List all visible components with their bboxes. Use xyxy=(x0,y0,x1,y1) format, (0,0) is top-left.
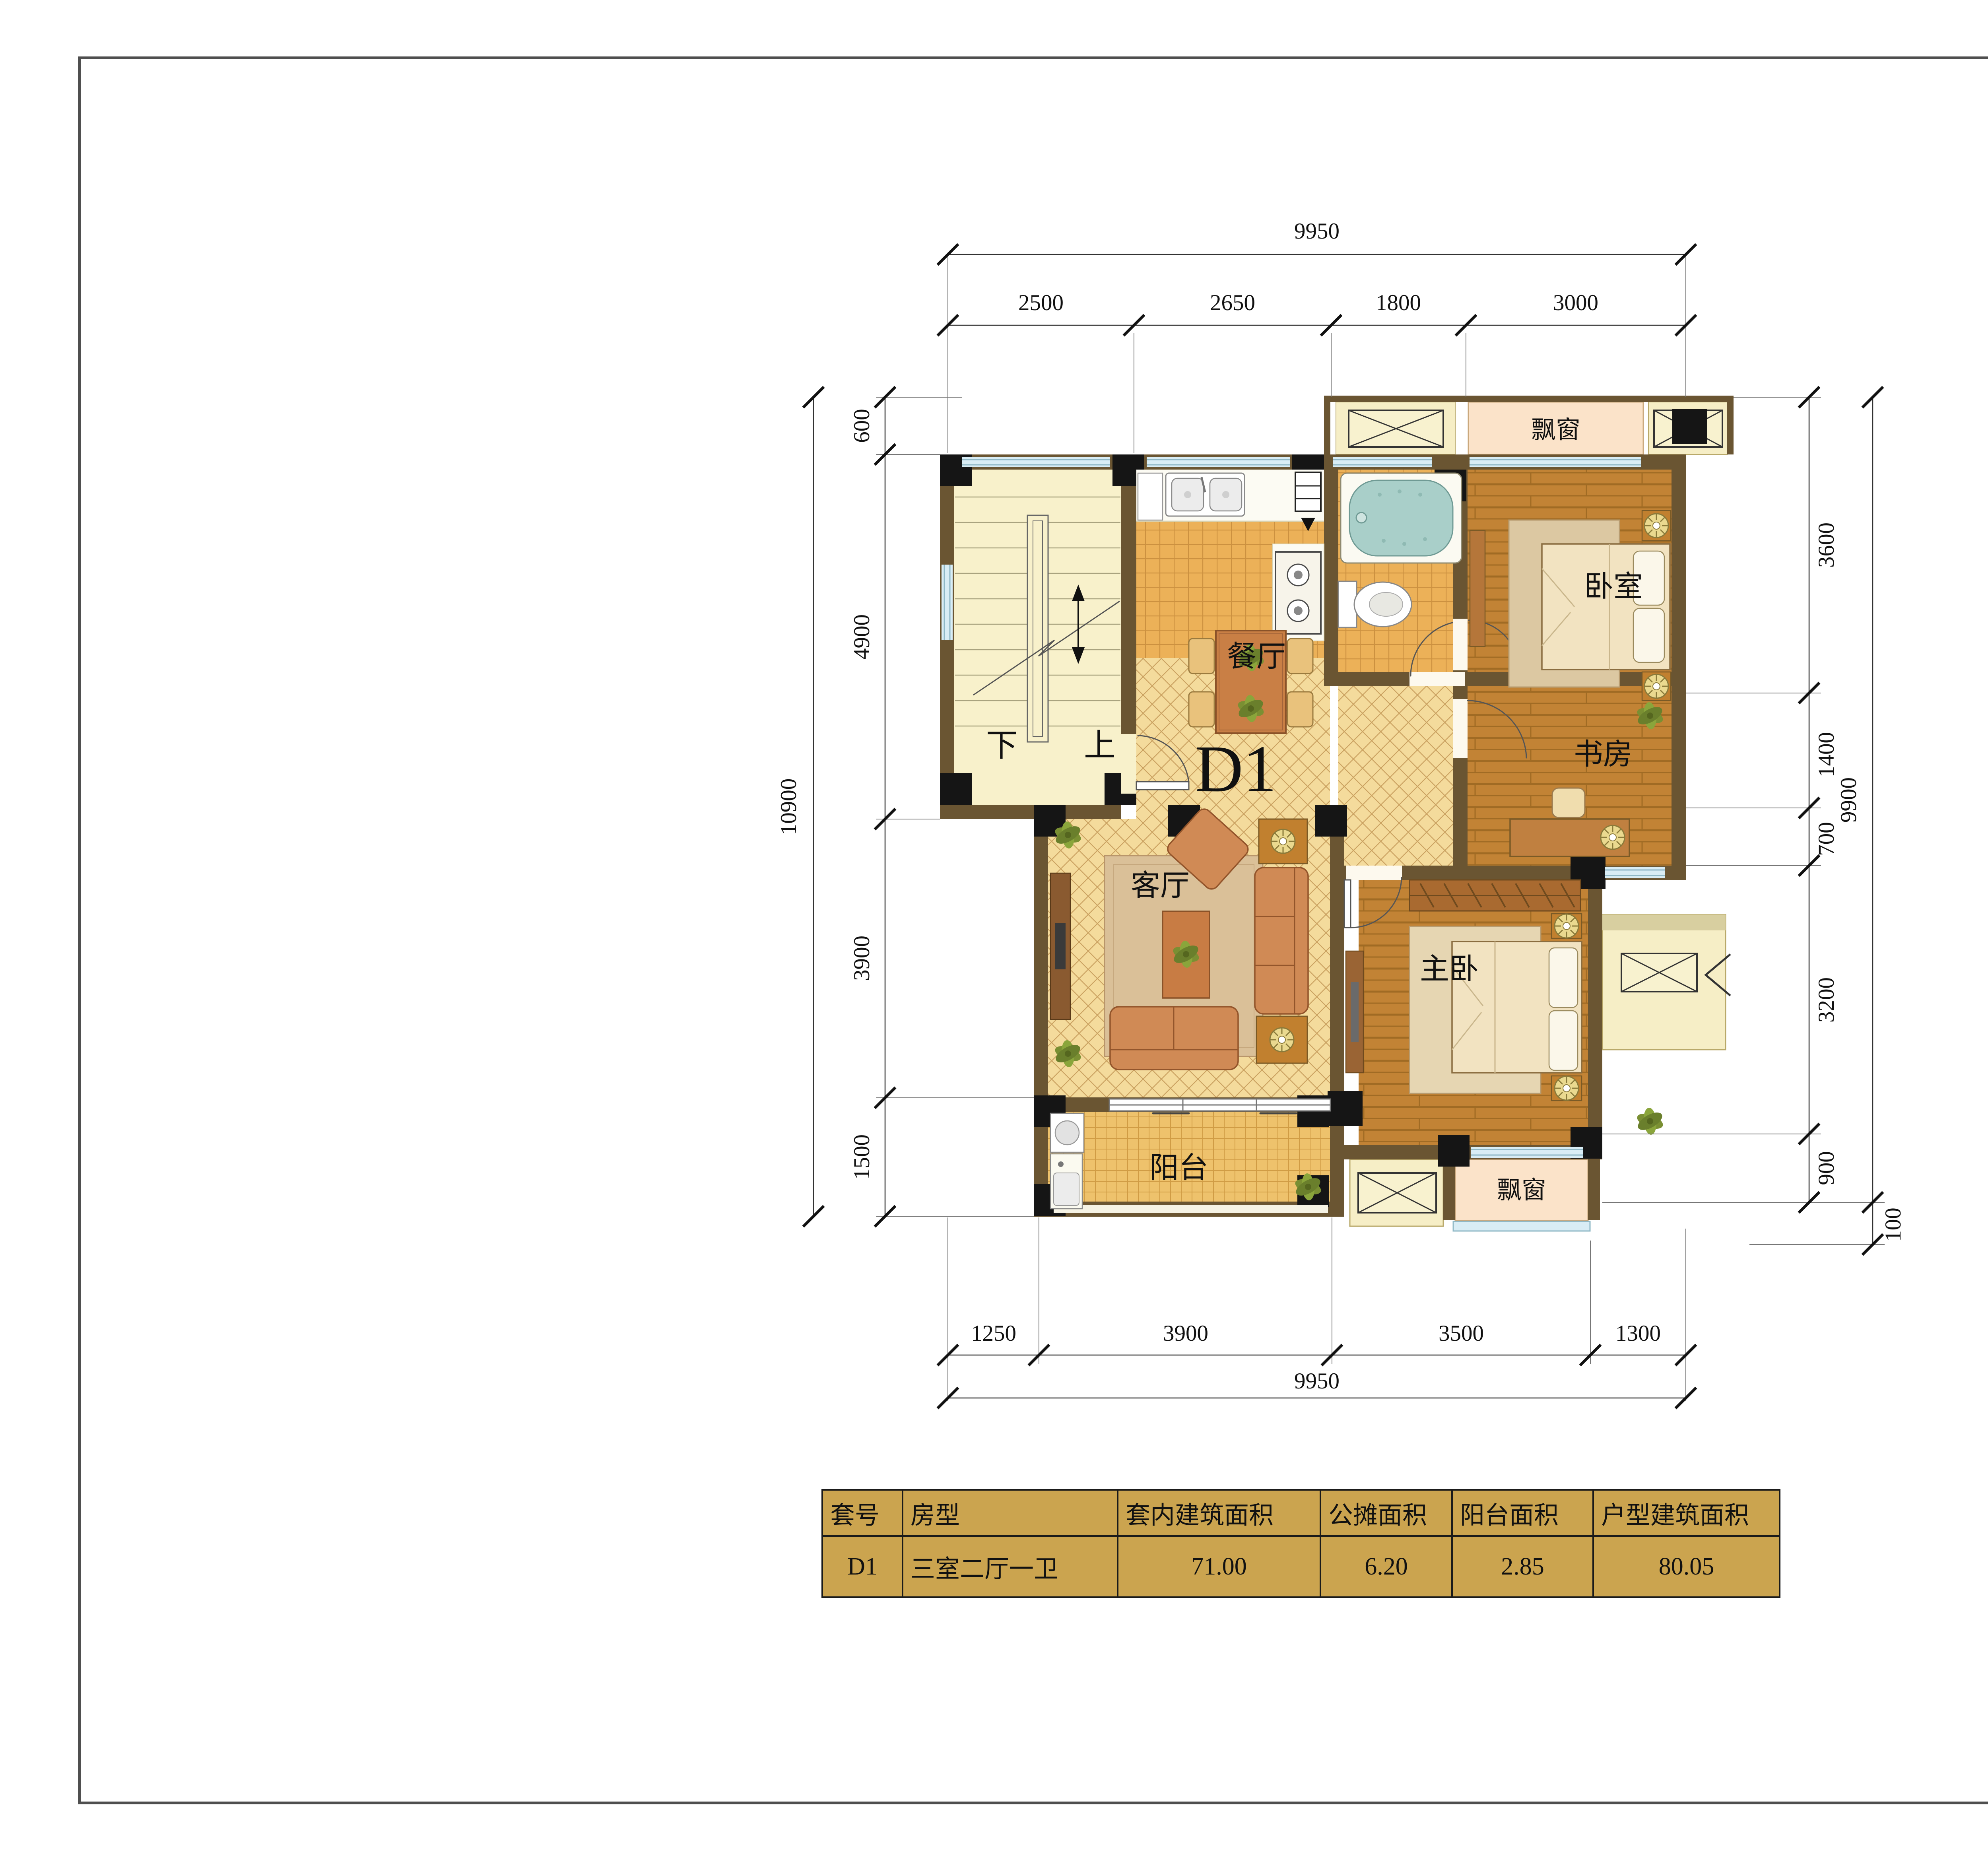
wall-living-master xyxy=(1330,819,1344,1217)
column xyxy=(940,773,972,805)
dining-chair xyxy=(1287,639,1313,674)
wall-master-right xyxy=(1588,880,1602,1159)
wall-topstrip-right xyxy=(1727,396,1734,454)
header-balcony-area: 阳台面积 xyxy=(1452,1490,1593,1536)
dim-right-total: 9900 xyxy=(1836,777,1861,823)
window-kitchen xyxy=(1147,457,1290,467)
bath-door-gap xyxy=(1409,672,1465,686)
wall-bay-bottom-right-stub xyxy=(1588,1159,1600,1220)
entry-door-leaf xyxy=(1136,782,1189,790)
wall-topstrip-left xyxy=(1324,396,1330,454)
header-unit-no: 套号 xyxy=(822,1490,903,1536)
dim-bottom-seg-1: 3900 xyxy=(1163,1321,1208,1346)
tv-icon xyxy=(1055,923,1066,969)
lamp-icon xyxy=(1644,674,1668,698)
dim-right-seg-2: 700 xyxy=(1814,822,1839,856)
dim-left-total: 10900 xyxy=(776,779,801,835)
bathtub-drain-icon xyxy=(1356,513,1367,523)
lamp-icon xyxy=(1601,825,1625,849)
dim-top-seg-0: 2500 xyxy=(1018,290,1064,315)
ac-platform-right-band xyxy=(1602,914,1726,930)
bedroom-door-gap xyxy=(1453,619,1468,670)
cell-shared-area: 6.20 xyxy=(1320,1536,1452,1597)
dining-chair xyxy=(1189,692,1214,727)
room-label-living: 客厅 xyxy=(1131,870,1190,902)
column xyxy=(1672,409,1707,444)
floor-plan-page: { "plan": { "unit_label": "D1", "rooms":… xyxy=(0,0,1988,1860)
tv-icon xyxy=(1351,982,1359,1042)
bay-window-bottom-glazing xyxy=(1453,1221,1590,1231)
dim-left-seg-1: 4900 xyxy=(849,614,874,660)
window-study xyxy=(1605,867,1665,878)
bay-window-bottom-label: 飘窗 xyxy=(1497,1177,1546,1204)
window-stair-left xyxy=(942,565,953,640)
window-stair-top xyxy=(962,457,1110,467)
unit-area-table: 套号 房型 套内建筑面积 公摊面积 阳台面积 户型建筑面积 D1 三室二厅一卫 … xyxy=(821,1489,1780,1598)
dim-right-seg-4: 900 xyxy=(1814,1151,1839,1185)
stair-rail xyxy=(1027,515,1048,742)
dim-right-seg-0: 3600 xyxy=(1814,522,1839,568)
room-label-bedroom: 卧室 xyxy=(1584,571,1643,603)
wall-bay-bottom-left-stub xyxy=(1443,1159,1455,1220)
cell-unit-no: D1 xyxy=(822,1536,903,1597)
dim-bottom-seg-2: 3500 xyxy=(1439,1321,1484,1346)
dim-right-offset: 100 xyxy=(1881,1208,1906,1242)
dim-left-seg-0: 600 xyxy=(849,409,874,443)
header-gross-area: 户型建筑面积 xyxy=(1593,1490,1780,1536)
column xyxy=(1315,805,1347,837)
lamp-icon xyxy=(1555,1076,1578,1100)
unit-label: D1 xyxy=(1195,732,1276,806)
dim-right-seg-3: 3200 xyxy=(1814,977,1839,1023)
cell-interior-area: 71.00 xyxy=(1118,1536,1320,1597)
dim-bottom-seg-0: 1250 xyxy=(971,1321,1016,1346)
table-data-row: D1 三室二厅一卫 71.00 6.20 2.85 80.05 xyxy=(822,1536,1780,1597)
cell-gross-area: 80.05 xyxy=(1593,1536,1780,1597)
lamp-icon xyxy=(1270,1028,1294,1052)
room-label-study: 书房 xyxy=(1574,738,1633,771)
lamp-icon xyxy=(1644,514,1668,538)
cell-balcony-area: 2.85 xyxy=(1452,1536,1593,1597)
hallway-floor xyxy=(1338,686,1453,866)
lamp-icon xyxy=(1271,829,1295,853)
stair-up-label: 上 xyxy=(1084,728,1116,763)
entry-door-gap xyxy=(1121,734,1136,794)
cell-layout: 三室二厅一卫 xyxy=(903,1536,1118,1597)
dining-chair xyxy=(1189,639,1214,674)
plant-icon xyxy=(1635,1107,1665,1136)
bedroom-dresser xyxy=(1470,530,1485,647)
pillow xyxy=(1549,948,1578,1008)
dim-left-seg-3: 1500 xyxy=(849,1134,874,1180)
pillow xyxy=(1549,1011,1578,1070)
master-door-leaf xyxy=(1344,880,1351,928)
room-label-dining: 餐厅 xyxy=(1227,641,1286,673)
header-interior-area: 套内建筑面积 xyxy=(1118,1490,1320,1536)
fridge-icon xyxy=(1295,472,1321,511)
column xyxy=(1328,1091,1363,1126)
pillow xyxy=(1633,608,1664,662)
dim-top-seg-2: 1800 xyxy=(1376,290,1421,315)
desk-chair xyxy=(1552,788,1585,817)
lamp-icon xyxy=(1555,914,1578,938)
bay-window-top-label: 飘窗 xyxy=(1531,417,1580,444)
room-label-balcony: 阳台 xyxy=(1149,1152,1208,1184)
table-header-row: 套号 房型 套内建筑面积 公摊面积 阳台面积 户型建筑面积 xyxy=(822,1490,1780,1536)
header-layout: 房型 xyxy=(903,1490,1118,1536)
dim-top-seg-1: 2650 xyxy=(1210,290,1255,315)
master-door-gap xyxy=(1346,866,1402,880)
wall-kitchen-bath xyxy=(1324,470,1338,672)
wall-right-upper xyxy=(1672,454,1686,880)
dim-left-seg-2: 3900 xyxy=(849,936,874,981)
room-label-master: 主卧 xyxy=(1420,953,1479,986)
dim-right-seg-1: 1400 xyxy=(1814,732,1839,777)
sofa-long xyxy=(1255,868,1308,1014)
window-bedroom-bay-sill xyxy=(1470,457,1641,467)
header-shared-area: 公摊面积 xyxy=(1320,1490,1452,1536)
dim-top-seg-3: 3000 xyxy=(1553,290,1598,315)
faucet-icon xyxy=(1058,1161,1064,1167)
window-balcony-bottom xyxy=(1054,1205,1328,1213)
dim-top-total: 9950 xyxy=(1294,219,1340,244)
wall-left-lower xyxy=(1034,805,1048,1217)
kitchen-appliance xyxy=(1138,473,1163,520)
column xyxy=(1438,1135,1470,1167)
wall-topstrip-top xyxy=(1324,396,1734,402)
stair-down-label: 下 xyxy=(986,728,1018,763)
window-master-bay-sill xyxy=(1471,1147,1583,1158)
dining-chair xyxy=(1287,692,1313,727)
window-bathroom xyxy=(1333,457,1432,467)
dim-bottom-seg-3: 1300 xyxy=(1615,1321,1661,1346)
dim-bottom-total: 9950 xyxy=(1294,1369,1340,1394)
wall-stair-bottom xyxy=(940,805,1121,819)
study-door-gap xyxy=(1453,699,1468,758)
